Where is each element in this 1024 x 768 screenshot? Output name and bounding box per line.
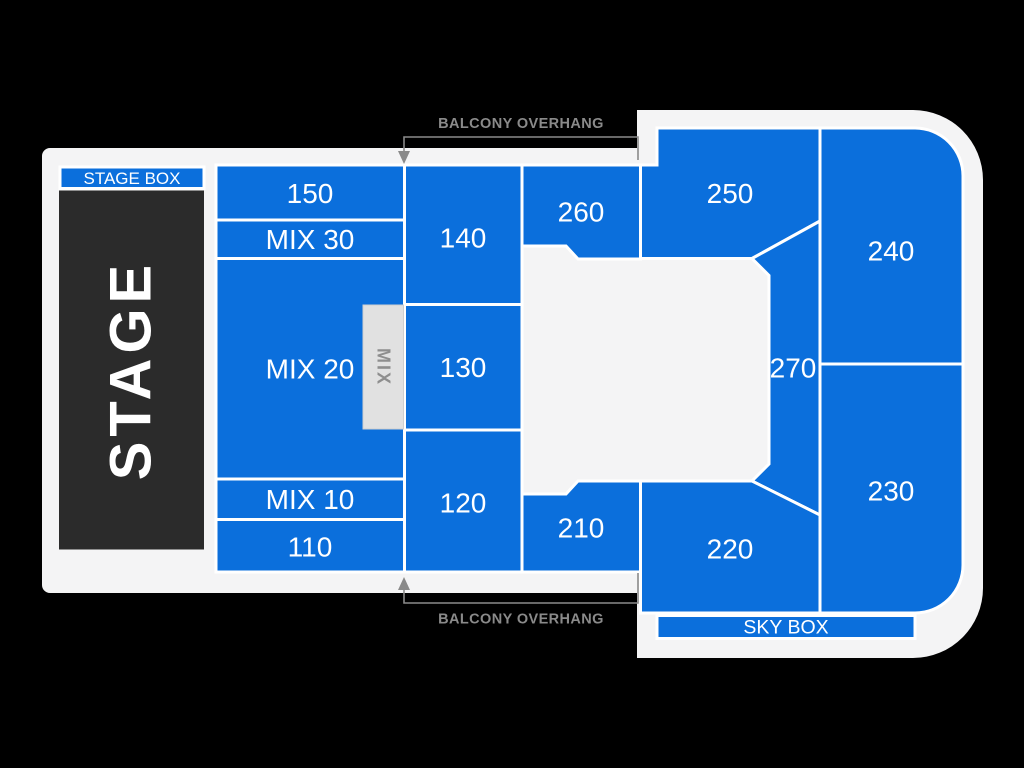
section-240-label: 240 xyxy=(868,236,915,267)
balcony-overhang-top-label: BALCONY OVERHANG xyxy=(438,116,604,132)
section-130-label: 130 xyxy=(440,352,487,383)
section-270-label: 270 xyxy=(770,353,817,384)
section-220-label: 220 xyxy=(707,534,754,565)
section-210-label: 210 xyxy=(558,513,605,544)
balcony-overhang-bottom-label: BALCONY OVERHANG xyxy=(438,612,604,628)
mix-booth-label: MIX xyxy=(374,348,394,386)
stage-label: STAGE xyxy=(99,260,164,481)
section-150-label: 150 xyxy=(287,178,334,209)
section-mix-20-label: MIX 20 xyxy=(266,354,355,385)
section-260-label: 260 xyxy=(558,197,605,228)
section-250-label: 250 xyxy=(707,178,754,209)
section-mix-10-label: MIX 10 xyxy=(266,484,355,515)
section-120-label: 120 xyxy=(440,488,487,519)
section-mix-30-label: MIX 30 xyxy=(266,224,355,255)
section-230-label: 230 xyxy=(868,476,915,507)
section-sky-box-label: SKY BOX xyxy=(743,617,828,639)
section-stage-box-label: STAGE BOX xyxy=(84,169,181,188)
section-110-label: 110 xyxy=(288,532,333,563)
section-140-label: 140 xyxy=(440,223,487,254)
venue-seat-map: STAGE BOX STAGE SKY BOX MIX 150 MIX 30 M… xyxy=(0,0,1024,768)
